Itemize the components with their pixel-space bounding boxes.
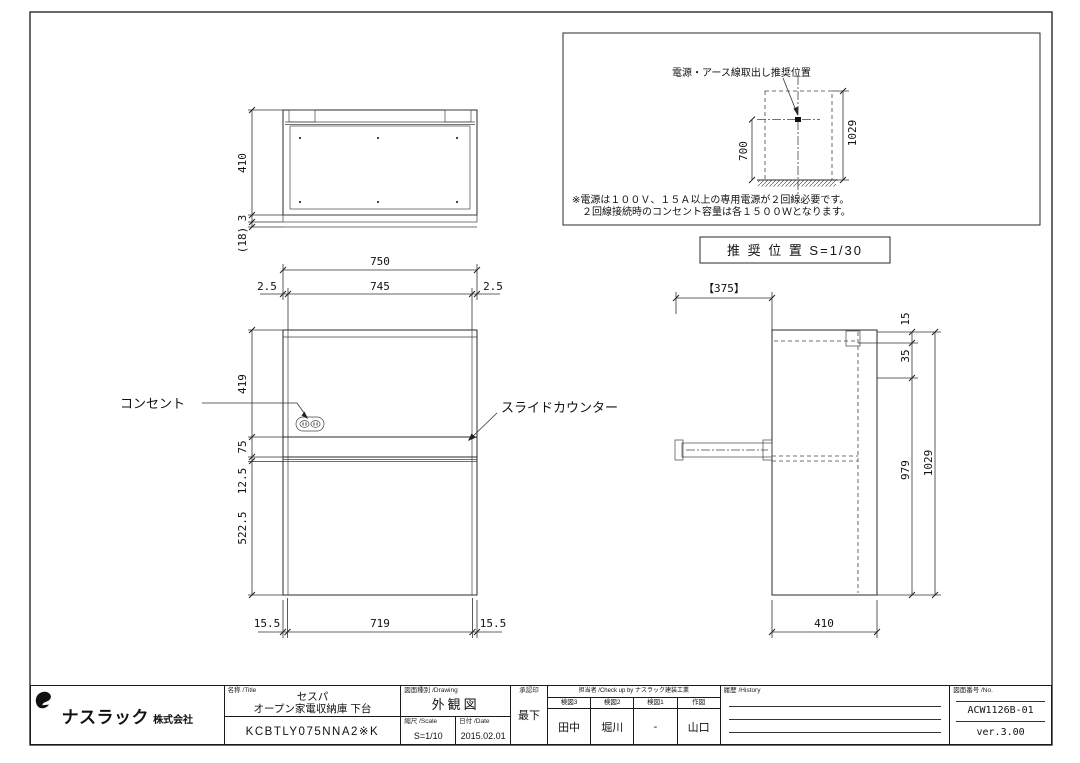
dim-front-counter-height: 75 (236, 440, 249, 453)
drawing-type-label: 図面種別 /Drawing (404, 687, 457, 694)
scale-value: S=1/10 (414, 731, 443, 741)
dim-toe-total: (18) (236, 227, 249, 254)
dim-front-bottom-width: 719 (370, 617, 390, 630)
outlet-point (795, 117, 801, 122)
dim-side-total-height: 1029 (922, 450, 935, 477)
dim-side-body-height: 979 (899, 460, 912, 480)
recommend-title: 電源・アース線取出し推奨位置 (672, 66, 811, 79)
date-value: 2015.02.01 (461, 731, 506, 741)
product-name: オープン家電収納庫 下台 (254, 703, 372, 715)
recommend-note-line1: ※電源は１００Ｖ、１５Ａ以上の専用電源が２回線必要です。 (572, 193, 849, 206)
recommend-note-line2: ２回線接続時のコンセント容量は各１５００Ｗとなります。 (572, 205, 851, 218)
title-block: ナスラック 株式会社 名称 /Title セスパ オープン家電収納庫 下台 KC… (30, 685, 1052, 745)
dim-front-total-width: 750 (370, 255, 390, 268)
outlet-symbol (296, 417, 324, 431)
front-view: 750 745 2.5 2.5 419 75 12.5 522.5 15.5 7… (120, 255, 618, 638)
dim-front-side-right: 2.5 (483, 280, 503, 293)
dim-front-side-left: 2.5 (257, 280, 277, 293)
company-cell: ナスラック 株式会社 (31, 686, 224, 744)
check1-col: 検図1 - (633, 698, 676, 744)
dim-side-rail: 35 (899, 349, 912, 362)
check1-value: - (634, 709, 676, 744)
drawing-number-label: 図面番号 /No. (953, 687, 993, 694)
dim-front-upper-height: 419 (236, 374, 249, 394)
label-slide-counter: スライドカウンター (501, 400, 618, 415)
top-view: 410 3 (18) (236, 110, 477, 253)
check2-label: 検図2 (591, 698, 633, 709)
drawer-label: 作図 (678, 698, 720, 709)
date-label: 日付 /Date (459, 718, 489, 725)
model-number: KCBTLY075NNA2※K (225, 717, 401, 744)
check3-value: 田中 (548, 709, 590, 744)
ground-hatch (758, 181, 836, 187)
screw-points (299, 137, 458, 203)
dim-side-counter-ext: 【375】 (703, 282, 745, 295)
drawer-col: 作図 山口 (677, 698, 720, 744)
history-rule (729, 719, 942, 720)
product-series: セスパ (297, 691, 329, 703)
title-label: 名称 /Title (228, 687, 257, 694)
stamp-label: 承認印 (519, 687, 539, 694)
dimension-ticks (249, 88, 938, 635)
drawing-linework: 410 3 (18) 750 745 2.5 2.5 419 75 12.5 5… (0, 0, 1080, 763)
staff-header: 担当者 /Check up by ナスラック建装工業 (548, 686, 720, 698)
recommend-caption: 推 奨 位 置 S=1/30 (700, 237, 890, 263)
dim-toe: 3 (236, 215, 249, 222)
dim-side-depth: 410 (814, 617, 834, 630)
check2-col: 検図2 堀川 (590, 698, 633, 744)
dim-recommend-outlet-height: 700 (737, 141, 750, 161)
number-rule (956, 701, 1045, 702)
drawing-number: ACW1126B-01 (950, 705, 1051, 716)
number-rule (956, 721, 1045, 722)
drawer-value: 山口 (678, 709, 720, 744)
company-suffix: 株式会社 (153, 711, 193, 726)
drawing-number-cell: 図面番号 /No. ACW1126B-01 ver.3.00 (949, 686, 1051, 744)
dim-recommend-total-height: 1029 (846, 120, 859, 147)
check2-value: 堀川 (591, 709, 633, 744)
leader-arrow-outlet (302, 412, 309, 420)
recommended-position-view: 電源・アース線取出し推奨位置 700 1029 ※電源は１００Ｖ、１５Ａ以上の専… (563, 33, 1040, 225)
date-cell: 日付 /Date 2015.02.01 (455, 717, 510, 744)
dim-front-foot-right: 15.5 (480, 617, 507, 630)
dim-front-counter-gap: 12.5 (236, 468, 249, 495)
history-label: 履歴 /History (724, 687, 761, 694)
drawing-sheet: 410 3 (18) 750 745 2.5 2.5 419 75 12.5 5… (0, 0, 1080, 763)
dim-front-inner-width: 745 (370, 280, 390, 293)
history-cell: 履歴 /History (720, 686, 950, 744)
dim-top-depth: 410 (236, 153, 249, 173)
history-rule (729, 706, 942, 707)
company-name: ナスラック (62, 703, 150, 728)
check3-col: 検図3 田中 (548, 698, 590, 744)
drawing-type-cell: 図面種別 /Drawing 外観図 縮尺 /Scale S=1/10 日付 /D… (400, 686, 510, 744)
history-rule (729, 732, 942, 733)
scale-label: 縮尺 /Scale (404, 718, 437, 725)
version: ver.3.00 (950, 727, 1051, 738)
stamp-value: 最下 (518, 707, 540, 723)
label-outlet: コンセント (120, 396, 185, 411)
slide-counter-side (675, 440, 772, 460)
side-view: 【375】 15 35 979 1029 410 (675, 282, 941, 638)
check1-label: 検図1 (634, 698, 676, 709)
staff-cell: 担当者 /Check up by ナスラック建装工業 検図3 田中 検図2 堀川… (547, 686, 720, 744)
check3-label: 検図3 (548, 698, 590, 709)
product-name-cell: 名称 /Title セスパ オープン家電収納庫 下台 KCBTLY075NNA2… (224, 686, 401, 744)
recommend-caption-text: 推 奨 位 置 S=1/30 (727, 243, 863, 258)
company-logo-icon (31, 686, 55, 710)
cabinet-outline-dashed (765, 91, 832, 180)
sheet-frame (30, 12, 1052, 745)
dim-front-lower-height: 522.5 (236, 511, 249, 544)
dim-side-top: 15 (899, 312, 912, 325)
scale-cell: 縮尺 /Scale S=1/10 (401, 717, 455, 744)
stamp-cell: 承認印 最下 (510, 686, 547, 744)
dim-front-foot-left: 15.5 (254, 617, 281, 630)
